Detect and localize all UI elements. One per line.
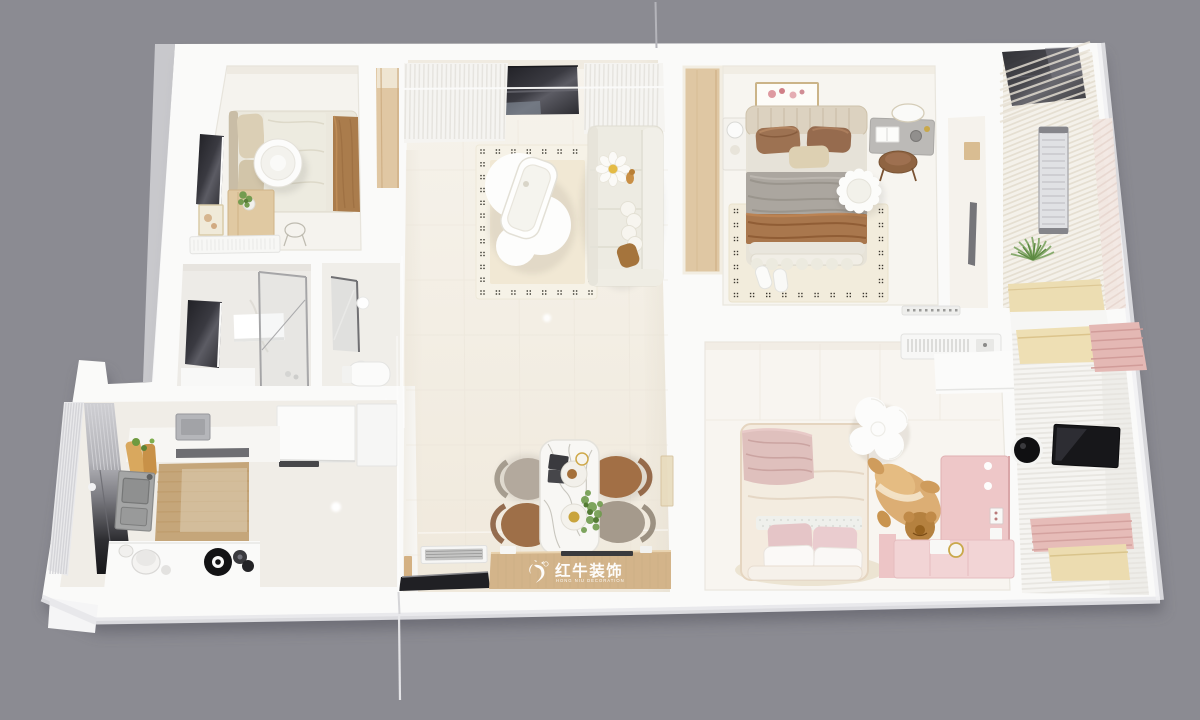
svg-text:HONG NIU DECORATION: HONG NIU DECORATION [556,578,625,583]
